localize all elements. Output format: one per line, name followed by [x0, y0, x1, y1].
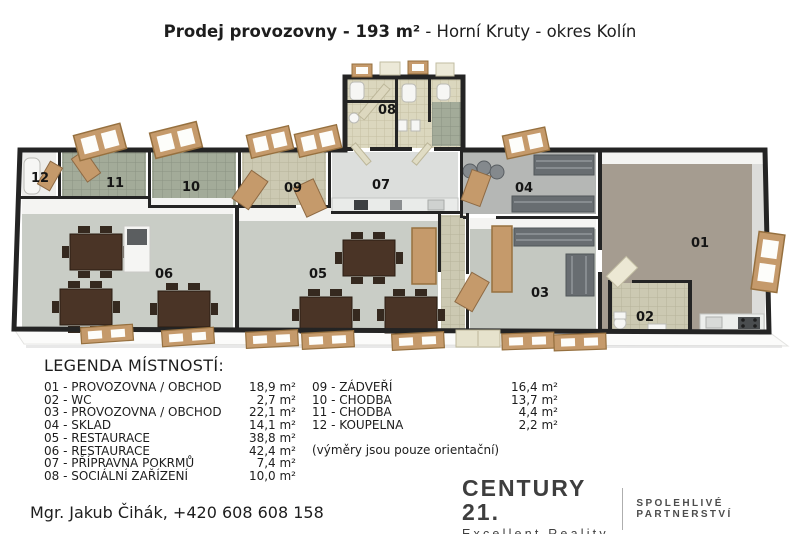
room-label-04: 04 — [515, 181, 533, 196]
floorplan: 01 02 03 04 05 06 07 08 09 10 11 12 — [0, 55, 800, 355]
title-bold: Prodej provozovny - 193 m² — [164, 22, 420, 41]
room-label-09: 09 — [284, 181, 302, 196]
flyer: Prodej provozovny - 193 m² - Horní Kruty… — [0, 0, 800, 534]
room-label-12: 12 — [31, 171, 49, 186]
room-label-05: 05 — [309, 267, 327, 282]
room-label-07: 07 — [372, 178, 390, 193]
shop-counter — [492, 226, 512, 292]
legend-column-1: 01 - PROVOZOVNA / OBCHOD18,9 m² 02 - WC2… — [44, 381, 296, 483]
legend-row: 08 - SOCIÁLNÍ ZAŘÍZENÍ10,0 m² — [44, 470, 296, 483]
window — [81, 324, 134, 344]
room-08-stall-floor — [432, 102, 461, 146]
window — [408, 61, 428, 74]
toilet — [350, 82, 364, 100]
room-label-08: 08 — [378, 103, 396, 118]
room-label-11: 11 — [106, 176, 124, 191]
brand-tagline: SPOLEHLIVÉ PARTNERSTVÍ — [636, 498, 800, 520]
toilet — [614, 312, 626, 329]
legend-row: 01 - PROVOZOVNA / OBCHOD18,9 m² — [44, 381, 296, 394]
cabinet — [124, 226, 150, 272]
wall-face-03 — [470, 218, 596, 229]
legend-row: 05 - RESTAURACE38,8 m² — [44, 432, 296, 445]
brand-text: CENTURY 21. — [462, 476, 610, 524]
legend-column-2: 09 - ZÁDVEŘÍ16,4 m² 10 - CHODBA13,7 m² 1… — [312, 381, 558, 483]
window — [502, 332, 555, 350]
window — [162, 327, 215, 347]
entrance-door — [456, 330, 500, 347]
room-label-06: 06 — [155, 267, 173, 282]
room-label-10: 10 — [182, 180, 200, 195]
window — [380, 62, 400, 75]
shelf-rack — [534, 155, 594, 175]
window — [554, 333, 607, 351]
legend: LEGENDA MÍSTNOSTÍ: 01 - PROVOZOVNA / OBC… — [44, 356, 558, 483]
page-title: Prodej provozovny - 193 m² - Horní Kruty… — [0, 22, 800, 41]
kitchenette — [700, 314, 764, 331]
bar-counter — [412, 228, 436, 284]
legend-row: 09 - ZÁDVEŘÍ16,4 m² — [312, 381, 558, 394]
room-10-floor — [152, 152, 236, 205]
legend-row: 04 - SKLAD14,1 m² — [44, 419, 296, 432]
urinal — [411, 120, 420, 131]
window — [246, 330, 299, 349]
century21-logo: CENTURY 21. Excellent Reality SPOLEHLIVÉ… — [462, 476, 800, 534]
wall-face-01 — [602, 152, 763, 164]
dining-table — [335, 232, 403, 284]
window — [352, 64, 372, 77]
logo-divider — [622, 488, 623, 530]
title-location: - Horní Kruty - okres Kolín — [420, 22, 636, 41]
legend-note: (výměry jsou pouze orientační) — [312, 443, 558, 457]
shelf-rack — [512, 196, 594, 212]
agent-contact: Mgr. Jakub Čihák, +420 608 608 158 — [30, 503, 324, 522]
window — [302, 331, 355, 350]
shelf-rack — [566, 254, 594, 296]
brand-subtitle: Excellent Reality — [462, 527, 610, 534]
dining-table — [62, 226, 130, 278]
toilet — [402, 84, 416, 102]
window — [392, 332, 445, 351]
room-label-03: 03 — [531, 286, 549, 301]
room-label-01: 01 — [691, 236, 709, 251]
legend-title: LEGENDA MÍSTNOSTÍ: — [44, 356, 558, 375]
room-label-02: 02 — [636, 310, 654, 325]
window — [436, 63, 454, 76]
legend-row: 12 - KOUPELNA2,2 m² — [312, 419, 558, 432]
shelf-rack — [514, 228, 594, 246]
kitchen-counter — [332, 198, 458, 212]
washbasin — [349, 113, 359, 123]
century21-wordmark: CENTURY 21. Excellent Reality — [462, 476, 610, 534]
toilet — [437, 84, 450, 100]
urinal — [398, 120, 407, 131]
